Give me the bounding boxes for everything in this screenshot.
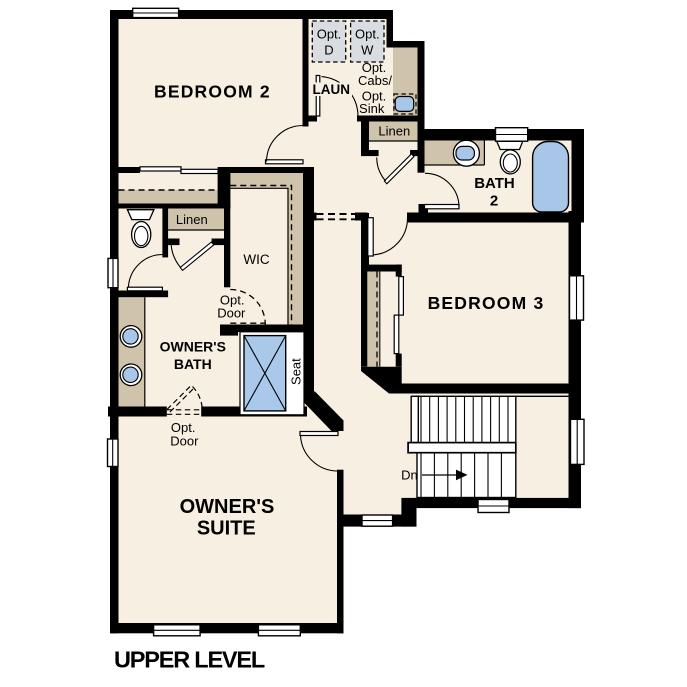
svg-text:LAUN: LAUN — [313, 82, 351, 97]
svg-text:BEDROOM 3: BEDROOM 3 — [428, 293, 545, 313]
svg-text:BEDROOM 2: BEDROOM 2 — [154, 82, 271, 102]
svg-text:Linen: Linen — [378, 124, 410, 139]
svg-text:Door: Door — [217, 305, 246, 320]
svg-text:BATH: BATH — [474, 175, 515, 192]
svg-text:OWNER'S: OWNER'S — [160, 339, 226, 355]
svg-text:Opt.: Opt. — [355, 27, 380, 42]
svg-text:Door: Door — [170, 433, 199, 448]
svg-text:OWNER'S: OWNER'S — [180, 496, 275, 518]
svg-text:WIC: WIC — [243, 252, 269, 267]
svg-text:BATH: BATH — [174, 356, 212, 372]
svg-text:Sink: Sink — [359, 101, 385, 116]
svg-text:Linen: Linen — [176, 212, 208, 227]
svg-text:Opt.: Opt. — [317, 27, 342, 42]
svg-text:Dn: Dn — [401, 468, 418, 483]
svg-text:Cabs/: Cabs/ — [358, 73, 392, 88]
svg-text:D: D — [324, 43, 333, 58]
svg-text:UPPER LEVEL: UPPER LEVEL — [114, 647, 265, 673]
svg-text:2: 2 — [490, 193, 498, 210]
svg-text:Seat: Seat — [289, 358, 304, 385]
svg-text:W: W — [361, 43, 374, 58]
svg-text:SUITE: SUITE — [197, 518, 256, 540]
